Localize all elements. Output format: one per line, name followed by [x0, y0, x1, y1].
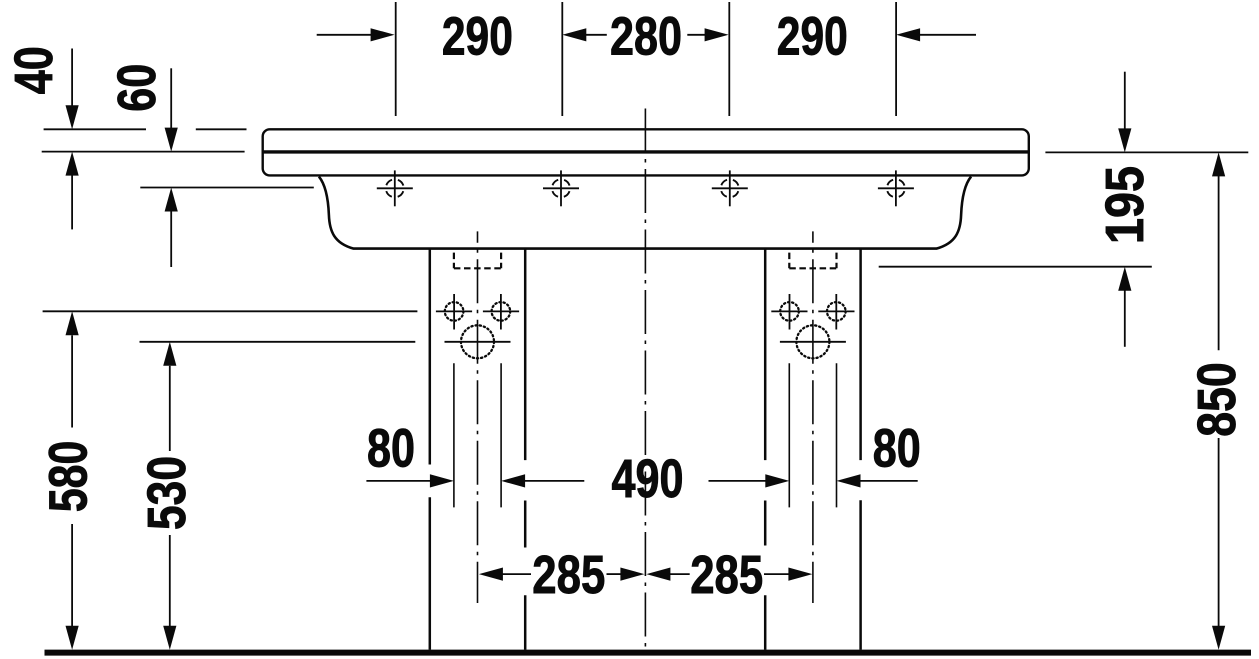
svg-text:290: 290: [777, 7, 848, 67]
svg-text:850: 850: [1187, 362, 1247, 437]
svg-text:490: 490: [612, 449, 684, 509]
svg-text:80: 80: [873, 418, 921, 478]
svg-text:530: 530: [137, 456, 197, 530]
svg-text:580: 580: [38, 441, 98, 513]
svg-text:80: 80: [367, 418, 415, 478]
svg-text:285: 285: [690, 545, 763, 605]
svg-text:40: 40: [4, 46, 64, 94]
svg-text:285: 285: [532, 545, 605, 605]
svg-text:60: 60: [107, 64, 167, 112]
svg-text:195: 195: [1095, 166, 1155, 244]
svg-text:280: 280: [610, 7, 682, 67]
svg-text:290: 290: [442, 7, 513, 67]
